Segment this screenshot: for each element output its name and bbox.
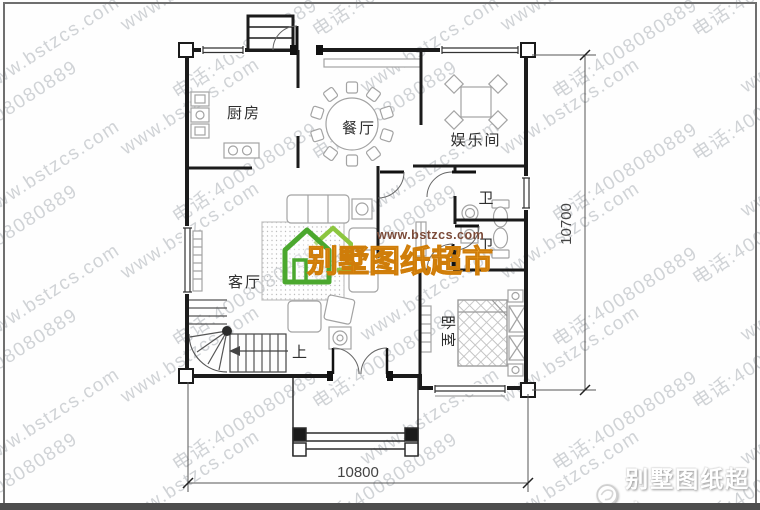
room-label-bedroom: 卧室 [439,315,456,349]
kitchen-counter [191,92,259,158]
game-table [445,75,507,129]
site-logo: www.bstzcs.com 别墅图纸超市 [281,216,521,294]
room-label-dining: 餐厅 [342,120,376,137]
site-title: 别墅图纸超市 [307,236,493,281]
porch [293,378,418,456]
room-label-bath-upper: 卫 [478,190,495,207]
staircase [189,300,288,372]
stairs-up-label: 上 [292,344,309,361]
footer-bar [0,503,760,510]
room-label-kitchen: 厨房 [227,105,261,122]
dimension-height-label: 10700 [558,203,575,245]
room-label-entertainment: 娱乐间 [450,132,501,149]
dimension-width-label: 10800 [337,464,379,481]
dining-table [310,59,420,166]
floorplan-image: 电话:4008080889www.bstzcs.com电话:4008080889… [0,0,760,510]
room-label-living: 客厅 [228,274,262,291]
